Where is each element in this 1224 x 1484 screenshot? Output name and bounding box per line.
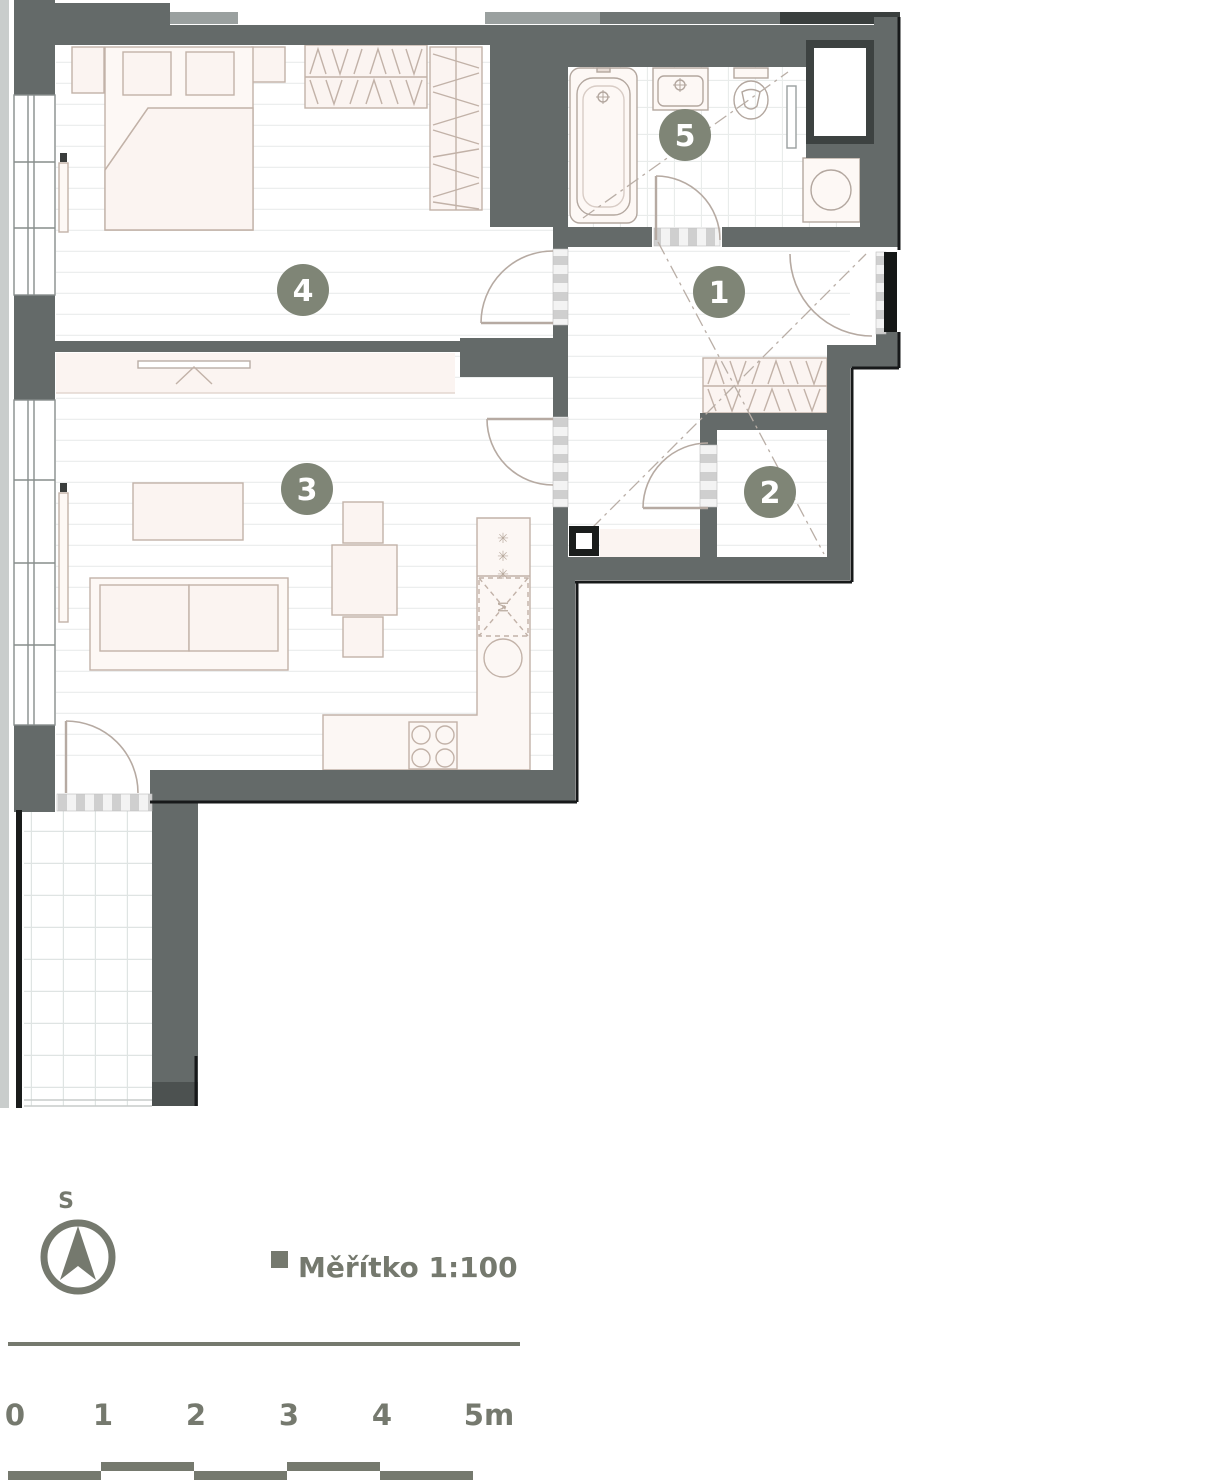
sofa-cushion-left xyxy=(100,585,189,651)
scale-tick-4: 4 xyxy=(372,1398,392,1432)
scale-bullet-icon xyxy=(271,1251,288,1268)
floor-plan-drawing: 1 2 3 4 5 ✳ ✳ ✳ M S Měřítko xyxy=(0,0,1224,1484)
media-band xyxy=(56,353,455,393)
pillow-left xyxy=(123,52,171,95)
scale-tick-0: 0 xyxy=(5,1398,25,1432)
windows xyxy=(14,95,55,725)
sofa-cushion-right xyxy=(189,585,278,651)
badge-room-3-number: 3 xyxy=(297,473,318,508)
badge-room-4-number: 4 xyxy=(293,274,314,309)
scale-tick-3: 3 xyxy=(279,1398,299,1432)
compass-needle xyxy=(60,1226,96,1280)
dining-chair-bottom xyxy=(343,617,383,657)
north-compass-icon: S xyxy=(44,1189,112,1291)
radiator-living xyxy=(59,493,68,622)
fridge-star-icon: ✳ xyxy=(497,567,509,583)
legend: S Měřítko 1:100 0 1 2 3 4 5m xyxy=(5,1189,520,1480)
hall-duct xyxy=(569,526,599,556)
badge-room-5[interactable]: 5 xyxy=(659,109,711,161)
pillow-right xyxy=(186,52,234,95)
badge-room-4[interactable]: 4 xyxy=(277,264,329,316)
badge-room-1-number: 1 xyxy=(709,276,730,311)
dining-table xyxy=(332,545,397,615)
entrance-door-leaf xyxy=(884,252,897,332)
scale-label: Měřítko 1:100 xyxy=(298,1251,518,1284)
fridge-star-icon: ✳ xyxy=(497,531,509,547)
coffee-table xyxy=(133,483,243,540)
badge-room-2[interactable]: 2 xyxy=(744,466,796,518)
neighbour-slab-left xyxy=(0,0,9,1108)
scale-tick-5: 5m xyxy=(464,1398,514,1432)
badge-room-3[interactable]: 3 xyxy=(281,463,333,515)
scale-tick-1: 1 xyxy=(93,1398,113,1432)
badge-room-2-number: 2 xyxy=(760,476,781,511)
floor-plan-page: 1 2 3 4 5 ✳ ✳ ✳ M S Měřítko xyxy=(0,0,1224,1484)
installation-shaft xyxy=(806,40,874,144)
dining-chair-top xyxy=(343,502,383,543)
nightstand-left xyxy=(72,47,104,93)
hall-mat xyxy=(600,529,700,557)
nightstand-right xyxy=(252,47,285,82)
shaft-access-panel xyxy=(787,86,796,148)
badge-room-1[interactable]: 1 xyxy=(693,266,745,318)
compass-direction-label: S xyxy=(58,1189,74,1214)
scale-bar: 0 1 2 3 4 5m xyxy=(5,1398,514,1480)
legend-divider xyxy=(8,1342,520,1346)
balcony-floor xyxy=(24,810,152,1106)
fridge-star-icon: ✳ xyxy=(497,549,509,565)
appliance-label: M xyxy=(497,601,512,612)
toilet-cistern xyxy=(734,68,768,78)
scale-tick-2: 2 xyxy=(186,1398,206,1432)
radiator-bedroom xyxy=(59,163,68,232)
badge-room-5-number: 5 xyxy=(675,119,696,154)
